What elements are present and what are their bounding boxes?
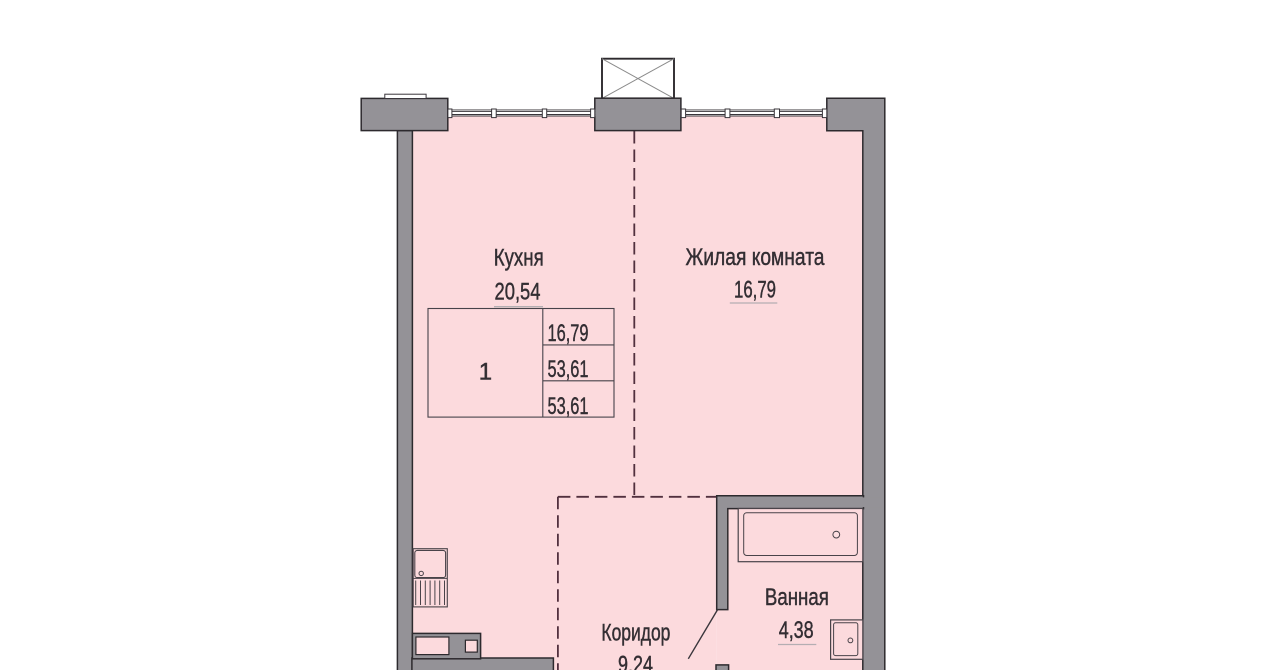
svg-text:20,54: 20,54 [495,278,541,305]
svg-text:Коридор: Коридор [601,620,670,647]
svg-text:53,61: 53,61 [548,393,589,420]
svg-text:9,24: 9,24 [618,651,653,670]
svg-text:16,79: 16,79 [548,320,589,347]
svg-text:Жилая комната: Жилая комната [686,244,826,271]
svg-text:1: 1 [479,359,492,386]
svg-text:53,61: 53,61 [548,356,589,383]
svg-text:Кухня: Кухня [494,245,544,272]
svg-text:16,79: 16,79 [734,277,776,304]
svg-text:4,38: 4,38 [779,617,814,644]
svg-text:Ванная: Ванная [765,584,829,611]
